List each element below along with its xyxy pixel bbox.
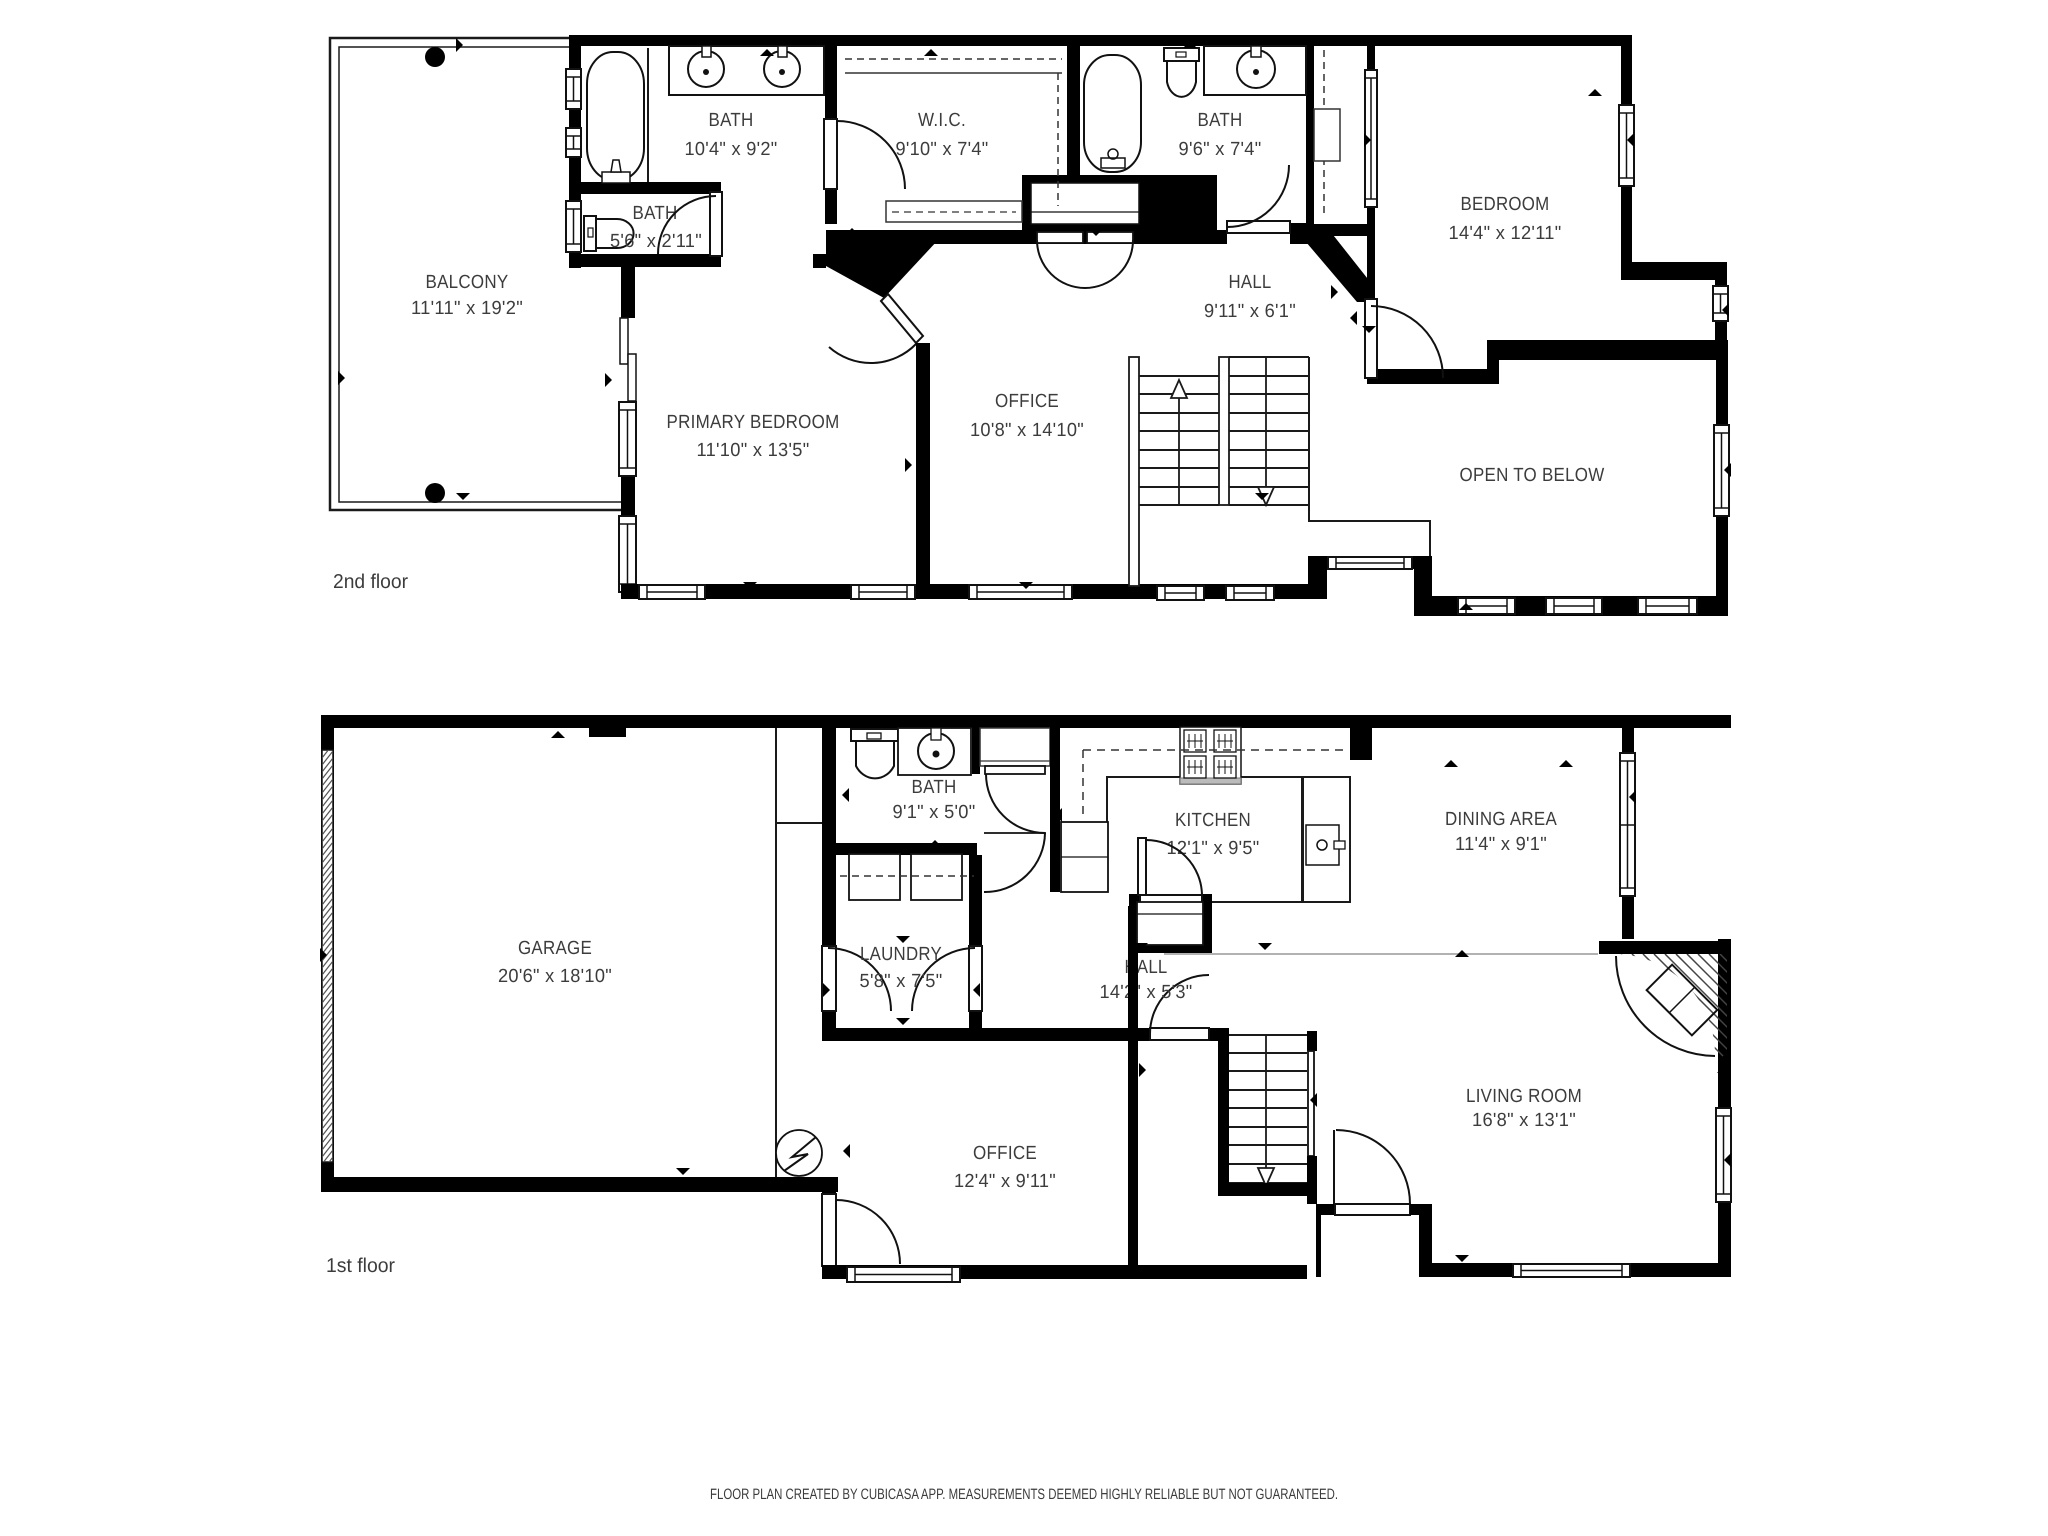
- svg-text:GARAGE: GARAGE: [518, 938, 592, 959]
- svg-text:14'4" x 12'11": 14'4" x 12'11": [1449, 223, 1562, 244]
- svg-text:10'8" x 14'10": 10'8" x 14'10": [970, 420, 1084, 441]
- svg-text:5'6" x 2'11": 5'6" x 2'11": [610, 231, 702, 252]
- svg-text:9'11" x 6'1": 9'11" x 6'1": [1204, 301, 1296, 322]
- svg-text:11'10" x 13'5": 11'10" x 13'5": [697, 440, 810, 461]
- svg-text:DINING AREA: DINING AREA: [1445, 809, 1557, 830]
- svg-text:HALL: HALL: [1229, 272, 1272, 293]
- svg-text:9'1" x 5'0": 9'1" x 5'0": [893, 802, 976, 823]
- svg-text:BATH: BATH: [633, 203, 678, 224]
- svg-text:OFFICE: OFFICE: [973, 1143, 1037, 1164]
- svg-text:20'6" x 18'10": 20'6" x 18'10": [498, 966, 612, 987]
- svg-text:KITCHEN: KITCHEN: [1175, 810, 1251, 831]
- svg-text:12'1" x 9'5": 12'1" x 9'5": [1167, 838, 1260, 859]
- svg-text:LAUNDRY: LAUNDRY: [860, 944, 942, 965]
- svg-text:5'8" x 7'5": 5'8" x 7'5": [860, 971, 943, 992]
- svg-text:BATH: BATH: [912, 777, 957, 798]
- svg-text:OFFICE: OFFICE: [995, 391, 1059, 412]
- svg-text:FLOOR PLAN CREATED BY CUBICASA: FLOOR PLAN CREATED BY CUBICASA APP. MEAS…: [710, 1486, 1338, 1503]
- svg-text:BEDROOM: BEDROOM: [1461, 194, 1550, 215]
- svg-text:11'4" x 9'1": 11'4" x 9'1": [1455, 834, 1547, 855]
- svg-text:12'4" x 9'11": 12'4" x 9'11": [954, 1171, 1056, 1192]
- svg-text:2nd floor: 2nd floor: [333, 571, 408, 593]
- svg-text:PRIMARY BEDROOM: PRIMARY BEDROOM: [667, 412, 840, 433]
- svg-text:LIVING ROOM: LIVING ROOM: [1466, 1086, 1582, 1107]
- svg-text:BATH: BATH: [1198, 110, 1243, 131]
- svg-text:9'6" x 7'4": 9'6" x 7'4": [1179, 139, 1262, 160]
- svg-text:10'4" x 9'2": 10'4" x 9'2": [685, 139, 778, 160]
- svg-text:16'8" x 13'1": 16'8" x 13'1": [1472, 1110, 1576, 1131]
- svg-text:BATH: BATH: [709, 110, 754, 131]
- svg-text:OPEN TO BELOW: OPEN TO BELOW: [1460, 465, 1605, 486]
- svg-text:W.I.C.: W.I.C.: [918, 110, 966, 131]
- svg-text:9'10" x 7'4": 9'10" x 7'4": [896, 139, 989, 160]
- svg-text:14'2" x 5'3": 14'2" x 5'3": [1100, 982, 1193, 1003]
- svg-text:11'11" x 19'2": 11'11" x 19'2": [411, 298, 523, 319]
- svg-text:BALCONY: BALCONY: [426, 272, 509, 293]
- svg-text:1st floor: 1st floor: [326, 1255, 395, 1277]
